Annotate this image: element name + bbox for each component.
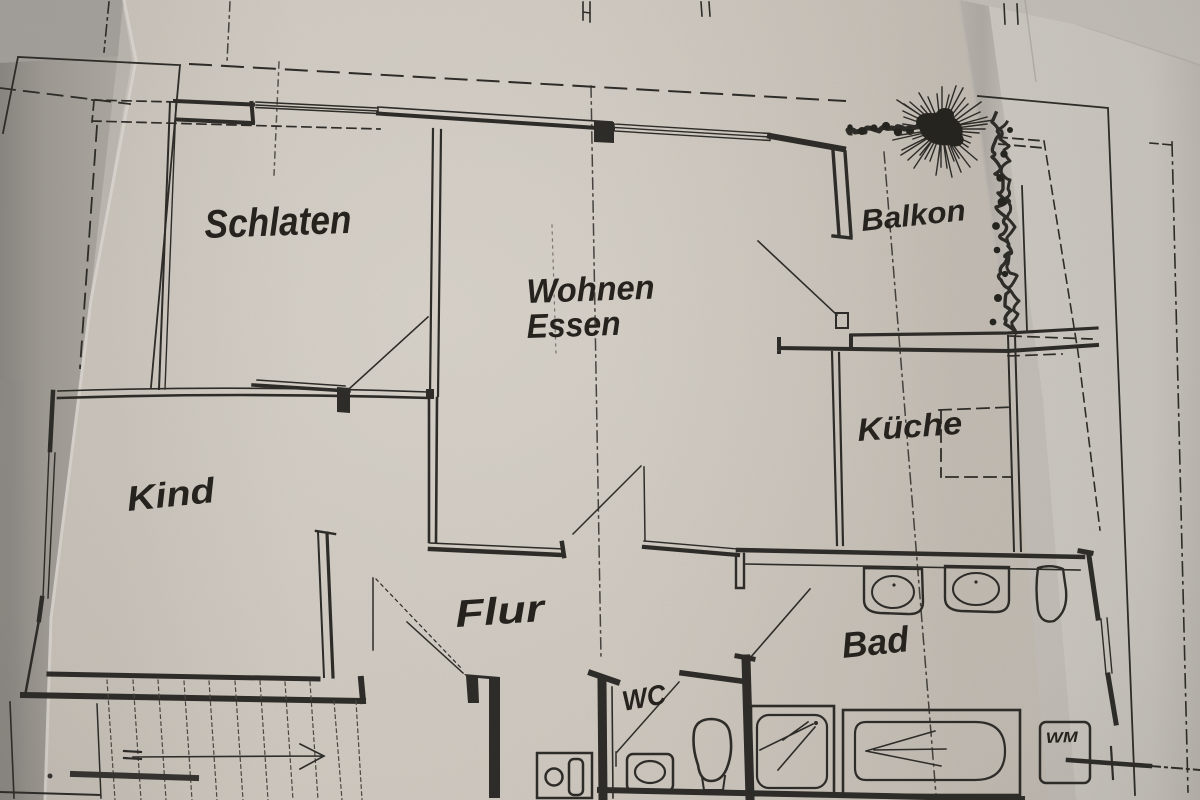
svg-text:WM: WM (1046, 729, 1079, 747)
svg-text:Schlaten: Schlaten (204, 198, 352, 247)
svg-text:Wohnen: Wohnen (526, 269, 655, 311)
svg-text:Küche: Küche (856, 405, 963, 448)
svg-text:Flur: Flur (454, 588, 548, 636)
svg-text:Bad: Bad (840, 618, 912, 666)
svg-text:Essen: Essen (526, 305, 621, 346)
